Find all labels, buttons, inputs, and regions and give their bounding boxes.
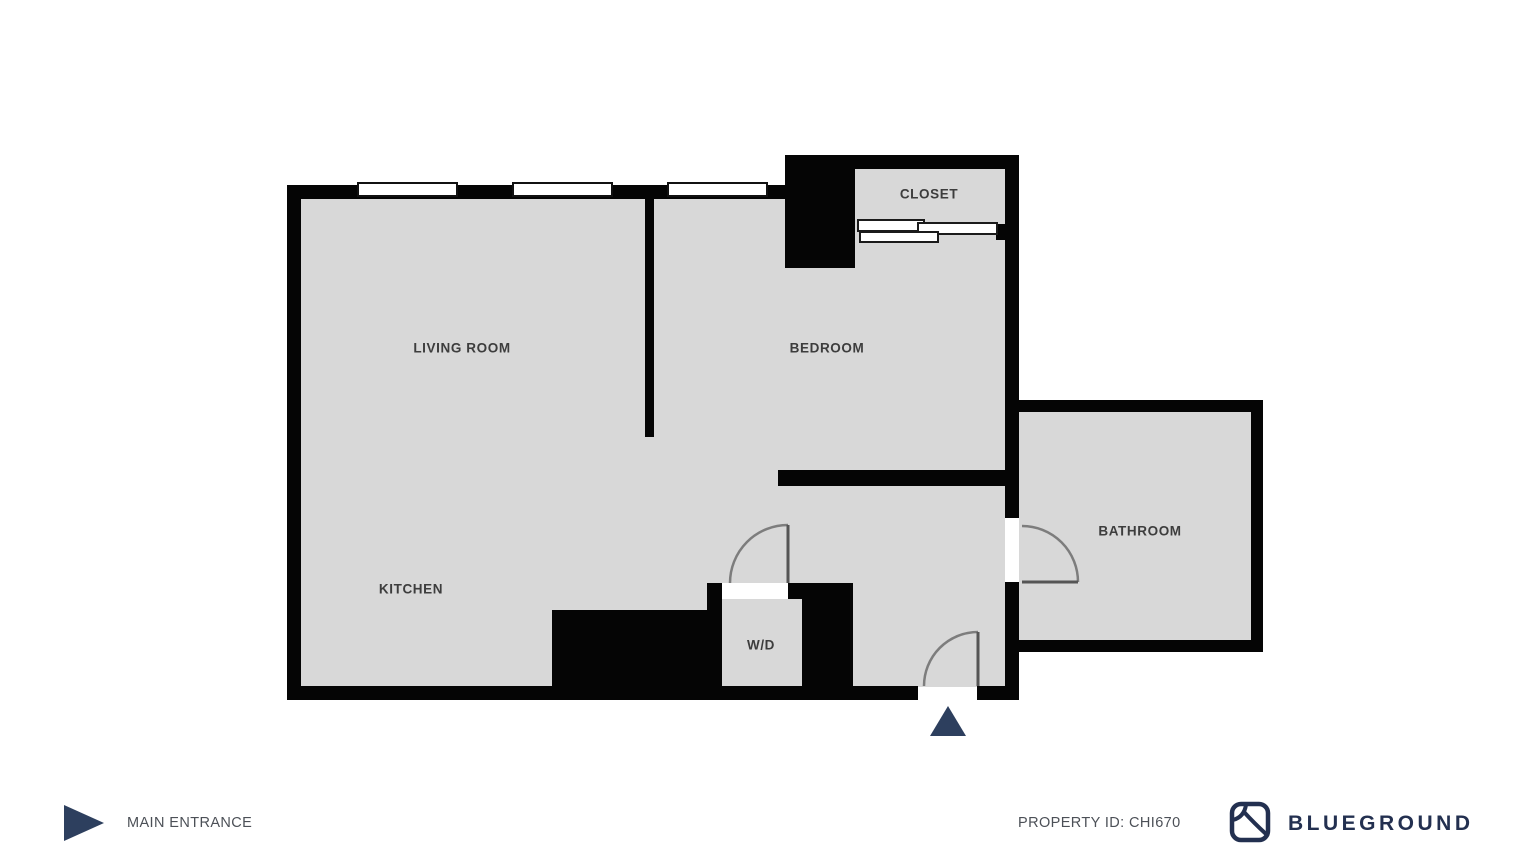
bedroom-label: BEDROOM <box>790 341 865 356</box>
bathroom-door-arc <box>1022 526 1078 582</box>
brand-logo: BLUEGROUND <box>1229 801 1474 843</box>
living-room-label: LIVING ROOM <box>413 341 510 356</box>
door-swing-layer <box>0 0 1520 855</box>
brand-name: BLUEGROUND <box>1288 809 1474 836</box>
property-id-label: PROPERTY ID: CHI670 <box>1018 815 1181 831</box>
main-entrance-legend-icon <box>64 805 104 841</box>
wd-door-arc <box>730 525 788 583</box>
kitchen-label: KITCHEN <box>379 582 443 597</box>
main-entrance-label: MAIN ENTRANCE <box>127 815 252 831</box>
wd-label: W/D <box>747 638 775 653</box>
entrance-door-arc <box>924 632 978 686</box>
floorplan-canvas: LIVING ROOM BEDROOM CLOSET BATHROOM KITC… <box>0 0 1520 855</box>
entrance-marker-icon <box>930 706 966 736</box>
closet-label: CLOSET <box>900 187 958 202</box>
bathroom-label: BATHROOM <box>1098 524 1181 539</box>
blueground-logo-icon <box>1229 801 1271 843</box>
